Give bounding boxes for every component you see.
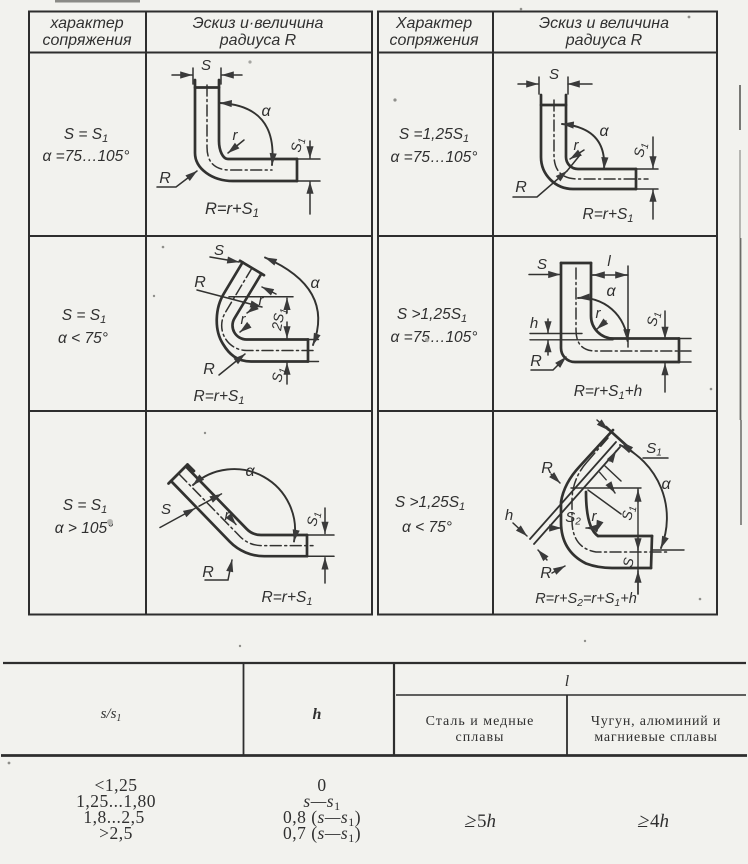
svg-text:S: S <box>537 256 547 273</box>
svg-text:R: R <box>515 179 527 196</box>
svg-text:R=r+S1: R=r+S1 <box>205 200 259 220</box>
svg-text:α: α <box>606 283 616 300</box>
svg-text:R=r+S2=r+S1+h: R=r+S2=r+S1+h <box>535 591 637 609</box>
svg-text:S: S <box>214 242 224 259</box>
svg-text:R: R <box>159 170 171 187</box>
svg-text:сопряжения: сопряжения <box>42 32 132 49</box>
svg-text:радиуса R: радиуса R <box>219 32 297 49</box>
svg-text:α < 75°: α < 75° <box>58 330 108 347</box>
svg-text:Сталь и медные: Сталь и медные <box>426 714 535 729</box>
svg-text:S: S <box>201 57 211 74</box>
svg-text:h: h <box>313 706 322 723</box>
svg-text:α < 75°: α < 75° <box>402 519 452 536</box>
svg-text:Чугун, алюминий и: Чугун, алюминий и <box>591 714 721 729</box>
svg-text:5h: 5h <box>477 811 496 832</box>
svg-text:>2,5: >2,5 <box>99 823 133 843</box>
svg-text:сопряжения: сопряжения <box>389 32 479 49</box>
svg-text:характер: характер <box>49 15 123 32</box>
svg-text:Эскиз и·величина: Эскиз и·величина <box>193 15 324 32</box>
svg-text:Характер: Характер <box>395 15 472 32</box>
svg-text:α: α <box>310 275 320 292</box>
svg-text:R=r+S1: R=r+S1 <box>583 206 634 225</box>
svg-text:S = S1: S = S1 <box>64 126 108 145</box>
svg-text:R=r+S1+h: R=r+S1+h <box>574 383 643 402</box>
svg-text:R: R <box>540 565 552 582</box>
svg-text:S >1,25S1: S >1,25S1 <box>395 494 465 513</box>
svg-text:S >1,25S1: S >1,25S1 <box>397 306 467 325</box>
svg-text:α =75…105°: α =75…105° <box>391 329 478 346</box>
svg-text:магниевые сплавы: магниевые сплавы <box>594 730 717 745</box>
svg-text:Эскиз и величина: Эскиз и величина <box>539 15 669 32</box>
svg-text:R=r+S1: R=r+S1 <box>262 589 313 608</box>
svg-text:α =75…105°: α =75…105° <box>391 149 478 166</box>
svg-text:R: R <box>194 274 206 291</box>
svg-text:R=r+S1: R=r+S1 <box>194 388 245 407</box>
svg-text:l: l <box>565 673 570 690</box>
svg-text:сплавы: сплавы <box>456 730 505 745</box>
svg-text:S: S <box>549 66 559 83</box>
svg-text:R: R <box>541 460 553 477</box>
svg-text:α: α <box>599 123 609 140</box>
svg-text:α: α <box>661 476 671 493</box>
svg-text:S: S <box>161 501 171 518</box>
svg-text:h: h <box>505 507 513 524</box>
svg-text:S =1,25S1: S =1,25S1 <box>399 126 469 145</box>
svg-text:α: α <box>245 463 255 480</box>
svg-text:радиуса R: радиуса R <box>565 32 643 49</box>
svg-text:α =75…105°: α =75…105° <box>43 148 130 165</box>
svg-text:4h: 4h <box>650 811 669 832</box>
svg-text:h: h <box>530 315 538 332</box>
svg-text:R: R <box>203 361 215 378</box>
svg-text:α > 105°: α > 105° <box>55 520 114 537</box>
svg-text:α: α <box>261 103 271 120</box>
svg-text:S = S1: S = S1 <box>62 307 106 326</box>
svg-text:S = S1: S = S1 <box>63 497 107 516</box>
svg-text:R: R <box>530 353 542 370</box>
svg-text:R: R <box>202 564 214 581</box>
